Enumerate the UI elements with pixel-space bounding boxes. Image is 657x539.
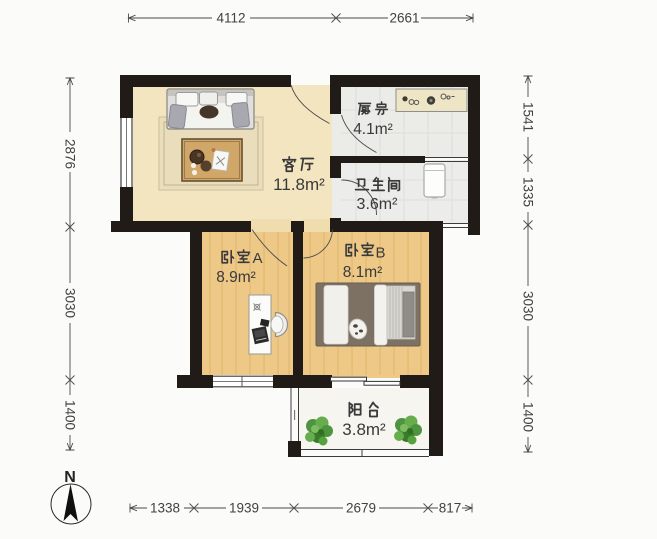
svg-text:8.1m²: 8.1m² — [343, 264, 383, 281]
svg-text:1338: 1338 — [150, 501, 180, 516]
svg-text:B: B — [376, 245, 386, 262]
svg-text:3030: 3030 — [63, 288, 78, 318]
svg-text:1541: 1541 — [521, 102, 536, 132]
svg-text:1400: 1400 — [63, 400, 78, 430]
svg-text:2679: 2679 — [346, 501, 376, 516]
svg-text:A: A — [253, 250, 263, 267]
svg-text:4112: 4112 — [216, 11, 245, 26]
svg-text:1400: 1400 — [521, 402, 536, 432]
svg-text:1335: 1335 — [521, 177, 536, 207]
svg-text:3.8m²: 3.8m² — [342, 420, 386, 439]
svg-text:N: N — [64, 469, 76, 486]
svg-text:2876: 2876 — [63, 139, 78, 169]
svg-text:4.1m²: 4.1m² — [353, 121, 393, 138]
svg-text:11.8m²: 11.8m² — [273, 175, 325, 194]
svg-text:3030: 3030 — [521, 291, 536, 321]
svg-text:3.6m²: 3.6m² — [357, 196, 399, 213]
svg-text:817: 817 — [439, 501, 462, 516]
svg-text:2661: 2661 — [389, 11, 419, 26]
svg-text:8.9m²: 8.9m² — [216, 269, 256, 286]
svg-text:1939: 1939 — [229, 501, 259, 516]
